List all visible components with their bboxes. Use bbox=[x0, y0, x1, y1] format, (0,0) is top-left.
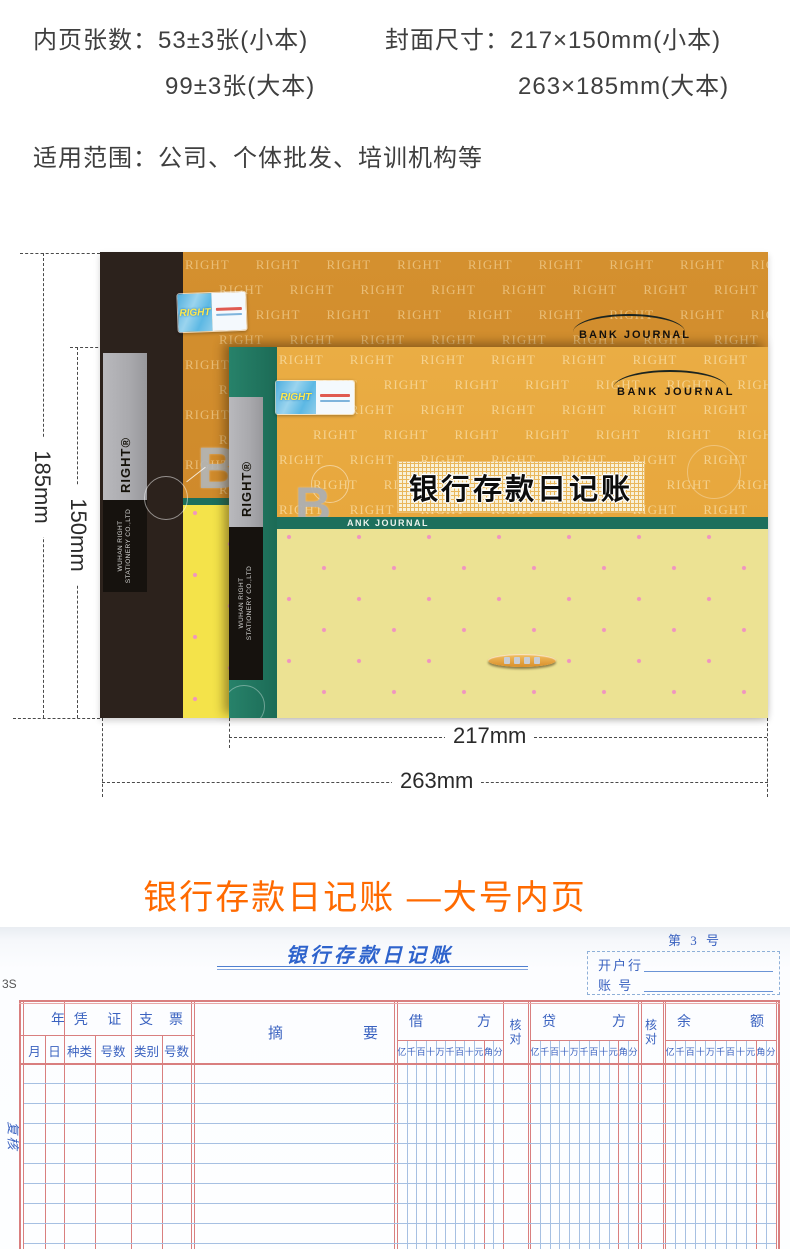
grid-line bbox=[778, 1000, 780, 1249]
digit-header: 元 bbox=[609, 1042, 619, 1061]
grid-line bbox=[559, 1040, 560, 1249]
digit-header: 千 bbox=[540, 1042, 550, 1061]
pattern-word: RIGHT bbox=[737, 427, 768, 442]
company-line2: STATIONERY CO.,LTD bbox=[125, 509, 132, 584]
bank-journal-label: BANK JOURNAL bbox=[617, 386, 735, 398]
col-cheque: 支票 bbox=[131, 1006, 191, 1032]
grid-line bbox=[618, 1040, 619, 1249]
digit-header: 千 bbox=[716, 1042, 726, 1061]
spec-pages-row: 内页张数：53±3张(小本) bbox=[33, 20, 308, 55]
pattern-word: RIGHT bbox=[539, 257, 584, 272]
grid-line bbox=[416, 1040, 417, 1249]
header-char: 贷 bbox=[542, 1011, 556, 1031]
sticker-brand-text: RIGHT bbox=[280, 392, 311, 403]
grid-line bbox=[24, 1243, 776, 1244]
grid-line bbox=[663, 1000, 664, 1249]
digit-header: 十 bbox=[426, 1042, 436, 1061]
header-char: 方 bbox=[612, 1011, 626, 1031]
header-char: 证 bbox=[107, 1009, 121, 1029]
header-char: 额 bbox=[750, 1011, 764, 1031]
ank-journal-label: ANK JOURNAL bbox=[347, 518, 429, 528]
spec-usage-value: 公司、个体批发、培训机构等 bbox=[158, 145, 483, 172]
col-voucher: 凭证 bbox=[64, 1006, 131, 1032]
spec-cover-small: 217×150mm(小本) bbox=[510, 27, 721, 54]
bank-label: 开户行 bbox=[598, 955, 643, 974]
col-month: 月 bbox=[24, 1040, 45, 1060]
pattern-word: RIGHT bbox=[454, 377, 499, 392]
grid-line bbox=[24, 1163, 776, 1164]
digit-header: 分 bbox=[628, 1042, 638, 1061]
grid-line bbox=[24, 1083, 776, 1084]
hologram-sticker: RIGHT bbox=[275, 380, 355, 415]
pattern-word: RIGHT bbox=[290, 282, 335, 297]
account-label: 账 号 bbox=[598, 975, 633, 994]
dim-label-150mm: 150mm bbox=[65, 485, 91, 585]
header-char: 核 bbox=[509, 1018, 521, 1032]
digit-header: 十 bbox=[736, 1042, 746, 1061]
teal-band: ANK JOURNAL bbox=[277, 517, 768, 529]
grid-line bbox=[64, 1000, 65, 1249]
sticker-blue-text bbox=[216, 313, 242, 316]
grid-line bbox=[426, 1040, 427, 1249]
col-cheque-type: 类别 bbox=[131, 1040, 162, 1060]
ledger-page-photo: 银行存款日记账 第 3 号 开户行 账 号 3S 复核 年 凭证 支票 月 日 … bbox=[0, 927, 790, 1249]
spec-pages-label: 内页张数： bbox=[33, 27, 158, 54]
spine-black-stripe-small: WUHAN RIGHT STATIONERY CO.,LTD bbox=[229, 527, 263, 680]
account-underline bbox=[644, 991, 773, 992]
dim-tick-right bbox=[767, 718, 768, 797]
digit-header: 万 bbox=[436, 1042, 446, 1061]
digit-header: 元 bbox=[474, 1042, 484, 1061]
grid-line bbox=[19, 1000, 21, 1249]
col-voucher-type: 种类 bbox=[64, 1040, 95, 1060]
pattern-word: RIGHT bbox=[680, 257, 725, 272]
grid-line bbox=[530, 1000, 531, 1249]
pattern-word: RIGHT bbox=[219, 332, 264, 347]
bank-underline bbox=[644, 971, 773, 972]
grid-line bbox=[746, 1040, 747, 1249]
grid-line bbox=[726, 1040, 727, 1249]
pattern-word: RIGHT bbox=[350, 452, 395, 467]
pattern-word: RIGHT bbox=[326, 257, 371, 272]
pattern-word: RIGHT bbox=[539, 307, 584, 322]
dim-label-263mm: 263mm bbox=[392, 768, 481, 794]
pattern-word: RIGHT bbox=[714, 332, 759, 347]
grid-line bbox=[665, 1040, 776, 1041]
grid-line bbox=[24, 1123, 776, 1124]
digit-header: 万 bbox=[569, 1042, 579, 1061]
grid-line bbox=[756, 1040, 757, 1249]
pattern-word: RIGHT bbox=[737, 377, 768, 392]
pattern-word: RIGHT bbox=[350, 402, 395, 417]
digit-header: 百 bbox=[589, 1042, 599, 1061]
col-credit: 贷方 bbox=[530, 1006, 638, 1036]
grid-line bbox=[540, 1040, 541, 1249]
digit-header: 亿 bbox=[397, 1042, 407, 1061]
grid-line bbox=[628, 1040, 629, 1249]
pattern-word: RIGHT bbox=[703, 502, 748, 517]
ledger-table: 年 凭证 支票 月 日 种类 号数 类别 号数 摘要 借方 贷方 余额 核对 核… bbox=[19, 1000, 780, 1249]
grid-line bbox=[455, 1040, 456, 1249]
grid-line bbox=[766, 1040, 767, 1249]
grid-line bbox=[599, 1040, 600, 1249]
pattern-word: RIGHT bbox=[680, 307, 725, 322]
pattern-word: RIGHT bbox=[431, 332, 476, 347]
pattern-word: RIGHT bbox=[596, 427, 641, 442]
pattern-word: RIGHT bbox=[525, 427, 570, 442]
pattern-word: RIGHT bbox=[397, 307, 442, 322]
pattern-word: RIGHT bbox=[491, 402, 536, 417]
header-char: 余 bbox=[677, 1011, 691, 1031]
header-char: 对 bbox=[509, 1032, 521, 1046]
pattern-word: RIGHT bbox=[420, 352, 465, 367]
grid-line bbox=[569, 1040, 570, 1249]
grid-line bbox=[19, 1063, 780, 1065]
col-day: 日 bbox=[45, 1040, 64, 1060]
grid-line bbox=[95, 1035, 96, 1249]
gold-oval-badge bbox=[488, 654, 556, 667]
ledger-title: 银行存款日记账 bbox=[255, 939, 485, 968]
digit-header: 千 bbox=[579, 1042, 589, 1061]
grid-line bbox=[736, 1040, 737, 1249]
pattern-word: RIGHT bbox=[633, 402, 678, 417]
grid-line bbox=[638, 1000, 639, 1249]
digit-header: 亿 bbox=[665, 1042, 675, 1061]
digit-header: 百 bbox=[455, 1042, 465, 1061]
pattern-word: RIGHT bbox=[751, 257, 768, 272]
grid-line bbox=[609, 1040, 610, 1249]
col-balance: 余额 bbox=[665, 1006, 776, 1036]
grid-line bbox=[162, 1035, 163, 1249]
cover-title-band: 银行存款日记账 bbox=[398, 462, 644, 512]
digit-header: 千 bbox=[407, 1042, 417, 1061]
header-char: 对 bbox=[645, 1032, 657, 1046]
pattern-word: RIGHT bbox=[256, 257, 301, 272]
digit-header: 千 bbox=[675, 1042, 685, 1061]
circle-decoration bbox=[687, 445, 741, 499]
pattern-word: RIGHT bbox=[502, 282, 547, 297]
digit-header: 千 bbox=[445, 1042, 455, 1061]
col-check-2: 核对 bbox=[639, 1008, 663, 1056]
digit-header: 百 bbox=[685, 1042, 695, 1061]
dim-tick-top-185 bbox=[20, 253, 100, 254]
header-char: 核 bbox=[645, 1018, 657, 1032]
grid-line bbox=[445, 1040, 446, 1249]
dim-label-217mm: 217mm bbox=[445, 723, 534, 749]
pattern-row: RIGHTRIGHTRIGHTRIGHTRIGHTRIGHTRIGHTRIGHT… bbox=[183, 277, 768, 302]
pattern-word: RIGHT bbox=[562, 402, 607, 417]
pattern-word: RIGHT bbox=[703, 352, 748, 367]
pattern-row: RIGHTRIGHTRIGHTRIGHTRIGHTRIGHTRIGHTRIGHT… bbox=[183, 302, 768, 327]
company-line1: WUHAN RIGHT bbox=[117, 521, 124, 572]
pattern-word: RIGHT bbox=[384, 427, 429, 442]
pattern-word: RIGHT bbox=[751, 307, 768, 322]
digit-header: 十 bbox=[560, 1042, 570, 1061]
dim-tick-217-left bbox=[229, 718, 230, 748]
grid-line bbox=[24, 1203, 776, 1204]
pattern-word: RIGHT bbox=[350, 502, 395, 517]
pattern-row: RIGHTRIGHTRIGHTRIGHTRIGHTRIGHTRIGHTRIGHT… bbox=[183, 252, 768, 277]
company-line2: STATIONERY CO.,LTD bbox=[246, 566, 253, 641]
company-line1: WUHAN RIGHT bbox=[238, 578, 245, 629]
digit-header: 万 bbox=[705, 1042, 715, 1061]
grid-line bbox=[397, 1040, 503, 1041]
pattern-word: RIGHT bbox=[737, 477, 768, 492]
digit-header: 百 bbox=[550, 1042, 560, 1061]
sticker-brand-area: RIGHT bbox=[177, 293, 212, 332]
grid-line bbox=[407, 1040, 408, 1249]
sticker-brand-area: RIGHT bbox=[276, 381, 316, 414]
dim-tick-263-left bbox=[102, 718, 103, 797]
dim-tick-bottom-left bbox=[13, 718, 100, 719]
spine-gray-stripe-small: RIGHT® bbox=[229, 397, 263, 527]
grid-line bbox=[776, 1000, 777, 1249]
grid-line bbox=[589, 1040, 590, 1249]
digit-header: 十 bbox=[599, 1042, 609, 1061]
grid-line bbox=[131, 1000, 132, 1249]
pattern-word: RIGHT bbox=[468, 307, 513, 322]
digit-header: 角 bbox=[484, 1042, 494, 1061]
pattern-word: RIGHT bbox=[609, 257, 654, 272]
sticker-brand-text: RIGHT bbox=[179, 307, 210, 319]
header-char: 借 bbox=[409, 1011, 423, 1031]
grid-line bbox=[695, 1040, 696, 1249]
grid-line bbox=[579, 1040, 580, 1249]
grid-line bbox=[394, 1000, 395, 1249]
header-char: 支 bbox=[139, 1009, 153, 1029]
pattern-word: RIGHT bbox=[279, 452, 324, 467]
spec-usage-label: 适用范围： bbox=[33, 145, 158, 172]
digit-header: 元 bbox=[746, 1042, 756, 1061]
pattern-word: RIGHT bbox=[562, 352, 607, 367]
title-underline bbox=[217, 966, 528, 967]
account-box: 开户行 账 号 bbox=[587, 951, 780, 995]
grid-line bbox=[464, 1040, 465, 1249]
grid-line bbox=[705, 1040, 706, 1249]
grid-line bbox=[665, 1000, 666, 1249]
pattern-word: RIGHT bbox=[360, 282, 405, 297]
pattern-word: RIGHT bbox=[667, 427, 712, 442]
pattern-word: RIGHT bbox=[502, 332, 547, 347]
spec-cover-large: 263×185mm(大本) bbox=[518, 66, 729, 101]
digit-header: 百 bbox=[416, 1042, 426, 1061]
spec-cover-label: 封面尺寸： bbox=[385, 27, 510, 54]
cover-small-pale bbox=[277, 529, 768, 718]
pattern-word: RIGHT bbox=[256, 307, 301, 322]
header-char: 要 bbox=[363, 1022, 378, 1043]
pattern-word: RIGHT bbox=[454, 427, 499, 442]
col-debit: 借方 bbox=[397, 1006, 503, 1036]
grid-line bbox=[474, 1040, 475, 1249]
pattern-word: RIGHT bbox=[185, 407, 230, 422]
pattern-word: RIGHT bbox=[384, 377, 429, 392]
grid-line bbox=[503, 1000, 504, 1249]
pattern-word: RIGHT bbox=[703, 402, 748, 417]
pattern-word: RIGHT bbox=[431, 282, 476, 297]
header-char: 票 bbox=[169, 1009, 183, 1029]
col-check-1: 核对 bbox=[503, 1008, 528, 1056]
margin-code: 3S bbox=[2, 977, 17, 991]
grid-line bbox=[19, 1003, 780, 1004]
grid-line bbox=[24, 1183, 776, 1184]
pattern-word: RIGHT bbox=[185, 257, 230, 272]
header-char: 摘 bbox=[268, 1022, 283, 1043]
company-name-small: WUHAN RIGHT STATIONERY CO.,LTD bbox=[238, 558, 254, 648]
grid-line bbox=[45, 1035, 46, 1249]
grid-line bbox=[436, 1040, 437, 1249]
sticker-red-text bbox=[320, 394, 350, 397]
digit-header: 分 bbox=[493, 1042, 503, 1061]
pattern-word: RIGHT bbox=[573, 282, 618, 297]
grid-line bbox=[484, 1040, 485, 1249]
hologram-sticker: RIGHT bbox=[176, 291, 247, 333]
ledger-page-number: 第 3 号 bbox=[668, 930, 722, 949]
pattern-word: RIGHT bbox=[397, 257, 442, 272]
circle-decoration bbox=[144, 476, 188, 520]
title-underline bbox=[217, 969, 528, 970]
grid-line bbox=[715, 1040, 716, 1249]
spec-pages-large: 99±3张(大本) bbox=[165, 66, 315, 101]
dim-label-185mm: 185mm bbox=[29, 437, 55, 537]
spec-pages-small: 53±3张(小本) bbox=[158, 27, 308, 54]
grid-line bbox=[24, 1143, 776, 1144]
pattern-word: RIGHT bbox=[313, 427, 358, 442]
pattern-word: RIGHT bbox=[714, 282, 759, 297]
grid-line bbox=[675, 1040, 676, 1249]
grid-line bbox=[528, 1000, 529, 1249]
notebook-small: RIGHT® WUHAN RIGHT STATIONERY CO.,LTD RI… bbox=[229, 347, 768, 718]
sticker-text-area bbox=[211, 292, 246, 331]
spine-gray-stripe: RIGHT® bbox=[103, 353, 147, 500]
header-char: 凭 bbox=[74, 1009, 88, 1029]
digit-header: 角 bbox=[756, 1042, 766, 1061]
grid-line bbox=[685, 1040, 686, 1249]
grid-line bbox=[19, 1035, 194, 1036]
header-char: 方 bbox=[477, 1011, 491, 1031]
digit-header: 百 bbox=[726, 1042, 736, 1061]
spine-black-stripe: WUHAN RIGHT STATIONERY CO.,LTD bbox=[103, 500, 147, 592]
pattern-word: RIGHT bbox=[360, 332, 405, 347]
pattern-word: RIGHT bbox=[633, 352, 678, 367]
pattern-word: RIGHT bbox=[643, 282, 688, 297]
spec-usage-row: 适用范围：公司、个体批发、培训机构等 bbox=[33, 138, 483, 173]
grid-line bbox=[530, 1040, 638, 1041]
col-cheque-no: 号数 bbox=[162, 1040, 191, 1060]
pattern-word: RIGHT bbox=[185, 357, 230, 372]
brand-logo-small: RIGHT® bbox=[239, 467, 253, 517]
grid-line bbox=[550, 1040, 551, 1249]
grid-line bbox=[641, 1000, 642, 1249]
pattern-word: RIGHT bbox=[420, 402, 465, 417]
grid-line bbox=[493, 1040, 494, 1249]
grid-line bbox=[191, 1000, 192, 1249]
company-name: WUHAN RIGHT STATIONERY CO.,LTD bbox=[117, 501, 133, 591]
sticker-blue-text bbox=[320, 400, 350, 402]
grid-line bbox=[19, 1000, 780, 1002]
pattern-word: RIGHT bbox=[525, 377, 570, 392]
pattern-row: RIGHTRIGHTRIGHTRIGHTRIGHTRIGHTRIGHTRIGHT… bbox=[277, 422, 768, 447]
digit-header: 分 bbox=[766, 1042, 776, 1061]
digit-header: 十 bbox=[465, 1042, 475, 1061]
cover-title: 银行存款日记账 bbox=[409, 466, 633, 508]
pattern-word: RIGHT bbox=[326, 307, 371, 322]
digit-header: 亿 bbox=[530, 1042, 540, 1061]
pattern-word: RIGHT bbox=[350, 352, 395, 367]
brand-logo: RIGHT® bbox=[118, 443, 132, 493]
pattern-word: RIGHT bbox=[279, 352, 324, 367]
pattern-word: RIGHT bbox=[468, 257, 513, 272]
grid-line bbox=[23, 1000, 24, 1249]
grid-line bbox=[397, 1000, 398, 1249]
bank-journal-label: BANK JOURNAL bbox=[579, 329, 691, 341]
spec-cover-row: 封面尺寸：217×150mm(小本) bbox=[385, 20, 721, 55]
section-title: 银行存款日记账 —大号内页 bbox=[0, 870, 730, 919]
product-detail-page: 内页张数：53±3张(小本) 封面尺寸：217×150mm(小本) 99±3张(… bbox=[0, 0, 790, 1249]
grid-line bbox=[24, 1103, 776, 1104]
digit-header: 十 bbox=[695, 1042, 705, 1061]
pattern-word: RIGHT bbox=[491, 352, 536, 367]
digit-header: 角 bbox=[618, 1042, 628, 1061]
pattern-row: RIGHTRIGHTRIGHTRIGHTRIGHTRIGHTRIGHTRIGHT… bbox=[277, 347, 768, 372]
grid-line bbox=[194, 1000, 195, 1249]
col-voucher-no: 号数 bbox=[95, 1040, 131, 1060]
grid-line bbox=[24, 1223, 776, 1224]
sticker-red-text bbox=[216, 307, 242, 311]
pattern-word: RIGHT bbox=[290, 332, 335, 347]
sticker-text-area bbox=[316, 381, 354, 414]
